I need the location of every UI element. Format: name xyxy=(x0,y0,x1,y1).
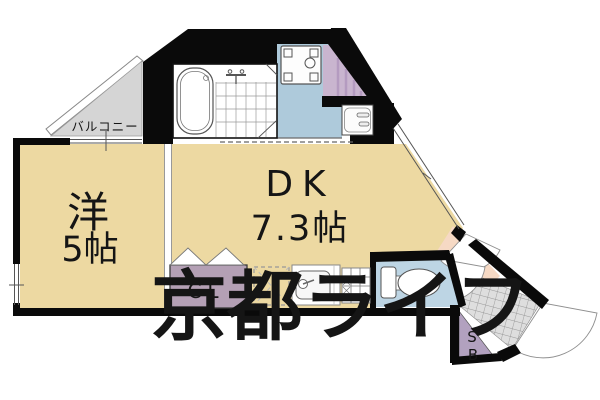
washbasin-icon xyxy=(342,105,373,135)
western-room-size: 5帖 xyxy=(61,230,118,270)
floor-plan-svg: バルコニー 洋 5帖 DK 7.3帖 CL S B 京都ライフ xyxy=(0,0,600,400)
wall-left xyxy=(13,138,20,264)
watermark-text: 京都ライフ xyxy=(151,262,531,351)
dk-size: 7.3帖 xyxy=(251,209,350,249)
wall-top-west xyxy=(13,138,70,145)
bathroom xyxy=(173,64,277,138)
wall-basin-bottom xyxy=(350,135,375,144)
washing-machine-pan-icon xyxy=(281,46,321,84)
floor-plan-image: バルコニー 洋 5帖 DK 7.3帖 CL S B 京都ライフ xyxy=(0,0,600,400)
wall-toilet-top xyxy=(373,250,452,262)
balcony-label: バルコニー xyxy=(71,119,138,134)
dk-label: DK xyxy=(265,164,334,205)
